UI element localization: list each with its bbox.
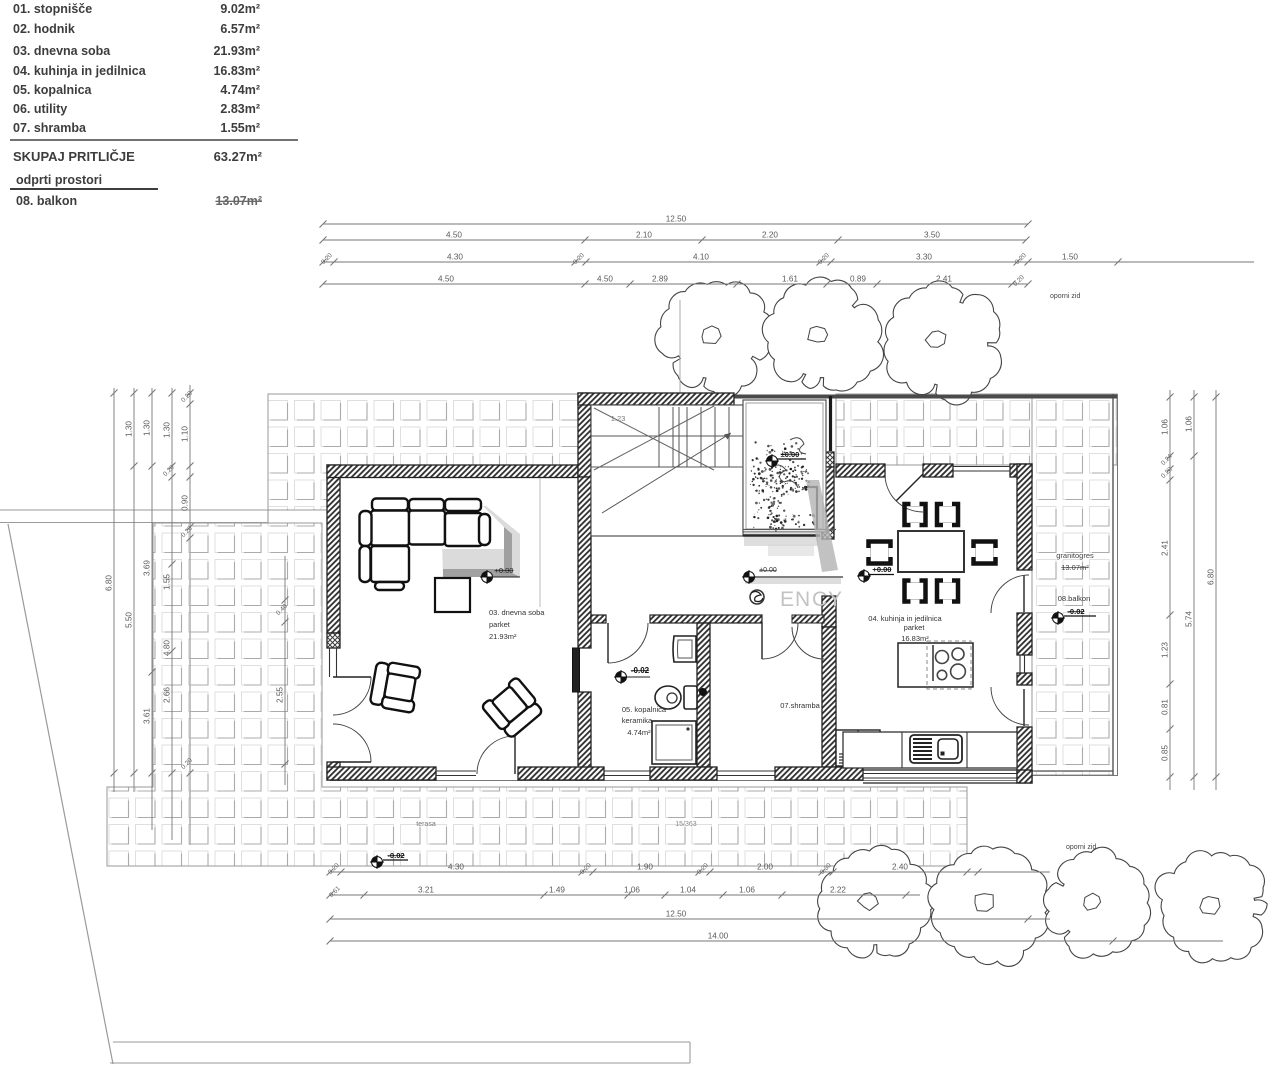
svg-text:C: C [812, 588, 827, 611]
svg-text:06. utility: 06. utility [13, 102, 67, 116]
svg-text:08.balkon: 08.balkon [1058, 594, 1091, 603]
svg-text:-0.02: -0.02 [631, 666, 650, 675]
svg-text:05. kopalnica: 05. kopalnica [13, 83, 93, 97]
svg-text:1.04: 1.04 [680, 886, 696, 895]
svg-text:2.83m²: 2.83m² [220, 102, 260, 116]
svg-text:12.50: 12.50 [666, 910, 687, 919]
svg-text:2.55: 2.55 [276, 687, 285, 703]
svg-text:63.27m²: 63.27m² [214, 149, 263, 164]
svg-text:1.06: 1.06 [1185, 416, 1194, 432]
svg-text:14.00: 14.00 [708, 932, 729, 941]
svg-text:03. dnevna soba: 03. dnevna soba [13, 44, 111, 58]
svg-text:5.74: 5.74 [1185, 611, 1194, 627]
svg-text:04. kuhinja in jedilnica: 04. kuhinja in jedilnica [868, 614, 942, 623]
svg-text:4.50: 4.50 [438, 275, 454, 284]
svg-text:1.49: 1.49 [549, 886, 565, 895]
svg-text:1.30: 1.30 [163, 422, 172, 438]
svg-text:13.07m²: 13.07m² [1061, 563, 1089, 572]
svg-text:1.06: 1.06 [739, 886, 755, 895]
svg-text:+0.00: +0.00 [873, 565, 892, 574]
svg-text:SKUPAJ PRITLIČJE: SKUPAJ PRITLIČJE [13, 149, 135, 164]
svg-text:21.93m²: 21.93m² [489, 632, 517, 641]
svg-text:2.10: 2.10 [636, 231, 652, 240]
svg-text:terasa: terasa [416, 821, 436, 828]
svg-text:0.85: 0.85 [1161, 745, 1170, 761]
svg-text:3.61: 3.61 [143, 708, 152, 724]
svg-text:4.30: 4.30 [448, 863, 464, 872]
svg-text:2.41: 2.41 [1161, 540, 1170, 556]
svg-text:5.50: 5.50 [125, 612, 134, 628]
svg-text:-0.02: -0.02 [1067, 607, 1084, 616]
svg-text:6.57m²: 6.57m² [220, 22, 260, 36]
svg-text:4.10: 4.10 [693, 253, 709, 262]
svg-text:6.80: 6.80 [105, 575, 114, 591]
svg-text:+0.00: +0.00 [495, 566, 514, 575]
svg-text:02. hodnik: 02. hodnik [13, 22, 75, 36]
svg-text:parket: parket [489, 620, 511, 629]
svg-text:12.50: 12.50 [666, 215, 687, 224]
svg-text:07. shramba: 07. shramba [13, 121, 87, 135]
svg-text:4.80: 4.80 [163, 640, 172, 656]
svg-text:1.55: 1.55 [163, 574, 172, 590]
svg-text:±0.00: ±0.00 [759, 567, 777, 574]
svg-text:E: E [780, 588, 794, 611]
svg-text:01. stopnišče: 01. stopnišče [13, 2, 92, 16]
svg-text:oporni zid: oporni zid [1050, 293, 1080, 300]
svg-text:0.90: 0.90 [181, 495, 190, 511]
svg-text:1.30: 1.30 [125, 421, 134, 437]
svg-text:N: N [795, 588, 810, 611]
svg-text:6.80: 6.80 [1207, 569, 1216, 585]
svg-text:0.89: 0.89 [850, 275, 866, 284]
svg-text:4.74m²: 4.74m² [627, 728, 651, 737]
svg-text:1.10: 1.10 [181, 426, 190, 442]
svg-text:-0.02: -0.02 [387, 851, 404, 860]
svg-text:1.06: 1.06 [624, 886, 640, 895]
svg-text:04. kuhinja in jedilnica: 04. kuhinja in jedilnica [13, 64, 147, 78]
svg-text:13.07m²: 13.07m² [215, 194, 262, 208]
svg-text:2.00: 2.00 [757, 863, 773, 872]
svg-text:4.50: 4.50 [597, 275, 613, 284]
svg-text:03. dnevna soba: 03. dnevna soba [489, 608, 545, 617]
svg-text:odprti prostori: odprti prostori [16, 173, 102, 187]
svg-text:parket: parket [904, 623, 926, 632]
svg-text:keramika: keramika [622, 716, 653, 725]
svg-text:4.74m²: 4.74m² [220, 83, 260, 97]
svg-text:2.22: 2.22 [830, 886, 846, 895]
svg-text:1.90: 1.90 [637, 863, 653, 872]
svg-text:1.30: 1.30 [143, 420, 152, 436]
svg-text:1.50: 1.50 [1062, 253, 1078, 262]
svg-text:1.55m²: 1.55m² [220, 121, 260, 135]
svg-text:4.30: 4.30 [447, 253, 463, 262]
svg-text:4.50: 4.50 [446, 231, 462, 240]
svg-text:0.81: 0.81 [1161, 699, 1170, 715]
svg-text:1.06: 1.06 [1161, 419, 1170, 435]
svg-text:1.61: 1.61 [782, 275, 798, 284]
svg-text:3.21: 3.21 [418, 886, 434, 895]
svg-text:9.02m²: 9.02m² [220, 2, 260, 16]
svg-text:3.50: 3.50 [924, 231, 940, 240]
svg-text:1.23: 1.23 [1161, 642, 1170, 658]
svg-text:2.41: 2.41 [936, 275, 952, 284]
svg-text:07.shramba: 07.shramba [780, 701, 820, 710]
svg-text:Y: Y [828, 588, 842, 611]
svg-text:15/363: 15/363 [675, 821, 697, 828]
svg-text:3.69: 3.69 [143, 560, 152, 576]
svg-text:±0.00: ±0.00 [781, 450, 800, 459]
svg-text:oporni zid: oporni zid [1066, 844, 1096, 851]
svg-text:2.89: 2.89 [652, 275, 668, 284]
svg-text:2.66: 2.66 [163, 687, 172, 703]
svg-text:05. kopalnica: 05. kopalnica [622, 705, 667, 714]
svg-text:2.40: 2.40 [892, 863, 908, 872]
svg-text:3.30: 3.30 [916, 253, 932, 262]
svg-text:21.93m²: 21.93m² [213, 44, 260, 58]
svg-text:16.83m²: 16.83m² [213, 64, 260, 78]
svg-text:1.23: 1.23 [611, 414, 626, 423]
svg-text:2.20: 2.20 [762, 231, 778, 240]
svg-text:16.83m²: 16.83m² [901, 634, 929, 643]
svg-text:granitogres: granitogres [1056, 551, 1094, 560]
svg-text:08. balkon: 08. balkon [16, 194, 77, 208]
